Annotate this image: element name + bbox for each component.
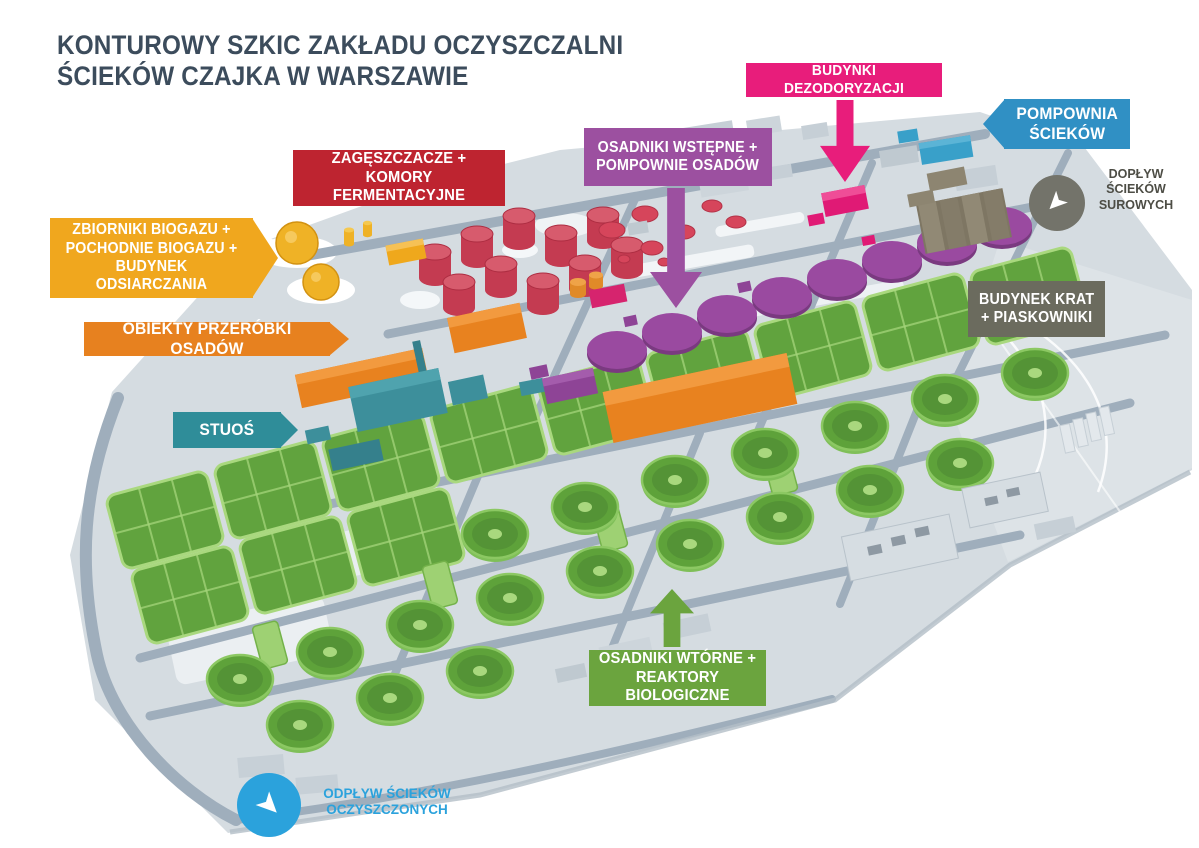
outflow-arrow-icon: ➤ [237, 773, 301, 837]
inflow-arrow-icon: ➤ [1029, 175, 1085, 231]
map-label-pompownia-sciekow: POMPOWNIA ŚCIEKÓW [1004, 99, 1130, 149]
infographic-canvas: KONTUROWY SZKIC ZAKŁADU OCZYSZCZALNI ŚCI… [0, 0, 1199, 848]
map-label-zageszczacze-komory-fermentacyjne: ZAGĘSZCZACZE + KOMORY FERMENTACYJNE [293, 150, 505, 206]
map-label-budynki-dezodoryzacji: BUDYNKI DEZODORYZACJI [746, 63, 942, 97]
map-label-zbiorniki-biogazu: ZBIORNIKI BIOGAZU + POCHODNIE BIOGAZU + … [50, 218, 253, 298]
map-label-osadniki-wtorne-reaktory: OSADNIKI WTÓRNE + REAKTORY BIOLOGICZNE [589, 650, 766, 706]
inflow-arrow-glyph: ➤ [1040, 186, 1074, 220]
map-label-stuos: STUOŚ [173, 412, 281, 448]
map-label-budynek-krat-piaskowniki: BUDYNEK KRAT + PIASKOWNIKI [968, 281, 1105, 337]
outflow-arrow-glyph: ➤ [249, 786, 288, 825]
inflow-marker-text: DOPŁYW ŚCIEKÓW SUROWYCH [1090, 167, 1182, 213]
map-label-osadniki-wstepne: OSADNIKI WSTĘPNE + POMPOWNIE OSADÓW [584, 128, 772, 186]
map-label-obiekty-przerobki-osadow: OBIEKTY PRZERÓBKI OSADÓW [84, 322, 330, 356]
page-title: KONTUROWY SZKIC ZAKŁADU OCZYSZCZALNI ŚCI… [57, 30, 623, 93]
outflow-marker-text: ODPŁYW ŚCIEKÓW OCZYSZCZONYCH [312, 786, 462, 819]
